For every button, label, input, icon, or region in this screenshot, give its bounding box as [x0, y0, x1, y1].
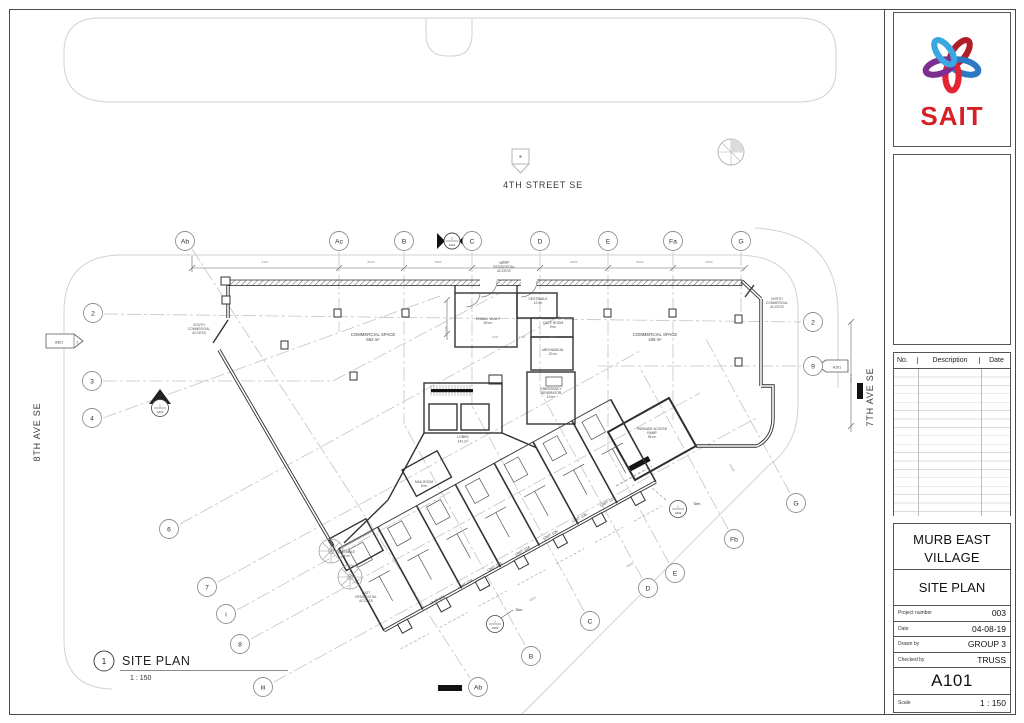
- grid-bubble-G: G: [787, 494, 806, 513]
- room-label-cacf-room: CACF ROOM9 m²: [543, 321, 563, 329]
- view-scale: 1 : 150: [130, 675, 152, 682]
- svg-text:3: 3: [90, 378, 94, 385]
- callout-marker-right: 1 A402: [670, 501, 687, 518]
- dim-label: 8000: [637, 260, 644, 264]
- street-label-top: 4TH STREET SE: [503, 180, 583, 190]
- site-plan-canvas: 1 A402 A301 2 1 A401 1 A402 1 A402: [0, 0, 884, 723]
- dim-label: 3437: [262, 260, 269, 264]
- section-sheet: A402: [449, 243, 456, 247]
- section-num: 1: [451, 237, 453, 241]
- field-date: Date 04-08-19: [894, 622, 1010, 638]
- callout2-sheet: A402: [675, 511, 682, 515]
- field-scale: Scale 1 : 150: [894, 695, 1010, 711]
- svg-text:8: 8: [238, 641, 242, 648]
- unit-interior-wall: [524, 485, 558, 521]
- unit-interior-wall: [369, 571, 403, 607]
- grid-bubble-E: E: [599, 232, 618, 251]
- flag-left-detail: 2: [77, 341, 79, 345]
- svg-text:Ab: Ab: [474, 684, 483, 691]
- grid-bubble-9: 9: [804, 357, 823, 376]
- svg-text:G: G: [793, 500, 798, 507]
- unit-band: [339, 399, 668, 651]
- field-value: GROUP 3: [968, 639, 1006, 649]
- svg-text:2: 2: [91, 310, 95, 317]
- grid-bubble-Fa: Fa: [664, 232, 683, 251]
- unit-patio-dash: [401, 634, 429, 649]
- drawing-title: SITE PLAN: [894, 570, 1010, 606]
- rev-col-no: No.: [894, 357, 918, 364]
- sait-logo-icon: [916, 27, 988, 99]
- svg-text:E: E: [673, 570, 678, 577]
- unit-patio-dash: [634, 506, 662, 521]
- grid-bubble-2: 2: [804, 313, 823, 332]
- view-title: 1 SITE PLAN 1 : 150: [94, 651, 288, 682]
- grid-bubble-C: C: [581, 612, 600, 631]
- field-label: Drawn by: [898, 641, 919, 647]
- grid-bubble-D: D: [531, 232, 550, 251]
- view-number: 1: [102, 657, 107, 666]
- svg-text:6: 6: [167, 526, 171, 533]
- field-label: Project number: [898, 610, 932, 616]
- room-label-mechanical: MECHANICAL20 m²: [542, 348, 564, 356]
- field-label: Checked by: [898, 657, 924, 663]
- unit-bathroom: [465, 478, 489, 503]
- unit-patio-dash: [556, 548, 584, 563]
- field-checked-by: Checked by TRUSS: [894, 653, 1010, 669]
- room-label-lobby: LOBBY141 m²: [457, 435, 470, 443]
- field-label: Date: [898, 626, 909, 632]
- svg-text:7: 7: [205, 584, 209, 591]
- unit-patio-dash: [440, 612, 468, 627]
- room-label-mail-room: MAIL ROOM8 m²: [415, 480, 433, 488]
- dim-label: 12192: [728, 463, 736, 473]
- grid-bubble-D: D: [639, 579, 658, 598]
- elevation-marker-icon: [512, 149, 529, 173]
- access-label-east: EASTRESIDENTIALACCESS: [355, 591, 377, 603]
- street-label-left: 8TH AVE SE: [32, 403, 42, 462]
- street-label-right: 7TH AVE SE: [865, 368, 875, 427]
- flag-right-sheet: A101: [833, 366, 841, 370]
- room-label-vestibule-west: VESTIBULE12 m²: [528, 297, 548, 305]
- svg-text:B: B: [529, 653, 534, 660]
- rev-col-description: Description: [918, 357, 980, 364]
- rev-col-date: Date: [980, 357, 1010, 364]
- diamond-sheet: A401: [157, 410, 164, 414]
- dim-label: 11130: [444, 326, 448, 334]
- dim-label: 1700: [519, 335, 525, 339]
- grid-bubble-8: 8: [231, 635, 250, 654]
- svg-text:iii: iii: [261, 684, 266, 691]
- flag-left-sheet: A301: [55, 341, 63, 345]
- right-tick-bar: [857, 383, 863, 399]
- dim-label: 8000: [571, 260, 578, 264]
- revision-header: No. Description Date: [894, 353, 1010, 369]
- unit-interior-wall: [408, 549, 442, 585]
- rev-divider-2: [981, 369, 982, 516]
- svg-text:4: 4: [90, 415, 94, 422]
- field-project-number: Project number 003: [894, 606, 1010, 622]
- grid-bubble-Ab: Ab: [469, 678, 488, 697]
- dim-label: 4177: [550, 335, 556, 339]
- dim-label: 4500: [529, 596, 537, 603]
- room-label-commercial-east: COMMERCIAL SPACE436 m²: [633, 332, 678, 342]
- titleblock-divider: [884, 9, 885, 714]
- svg-text:9: 9: [811, 363, 815, 370]
- dim-label: 8000: [503, 260, 510, 264]
- unit-interior-wall: [485, 507, 519, 543]
- unit-bathroom: [543, 436, 567, 461]
- callout-marker-mid: 1 A402: [487, 610, 514, 633]
- dim-label: 3000: [435, 260, 442, 264]
- callout-sheet: A402: [492, 626, 499, 630]
- logo-text: SAIT: [920, 101, 983, 132]
- revision-table: No. Description Date: [893, 352, 1011, 516]
- svg-text:Ab: Ab: [181, 238, 190, 245]
- north-arrow-icon: [718, 139, 744, 165]
- unit-interior-wall: [563, 464, 597, 500]
- unit-patio-dash: [517, 570, 545, 585]
- svg-text:C: C: [588, 618, 593, 625]
- grid-bubble-7: 7: [198, 578, 217, 597]
- svg-text:2: 2: [811, 319, 815, 326]
- svg-text:D: D: [538, 238, 543, 245]
- logo-panel: SAIT: [893, 12, 1011, 147]
- field-value: 04-08-19: [972, 624, 1006, 634]
- room-label-enmax-vault: ENMAX VAULT39 m²: [476, 317, 501, 325]
- svg-text:E: E: [606, 238, 611, 245]
- field-label: Scale: [898, 700, 911, 706]
- grid-bubble-E: E: [666, 564, 685, 583]
- field-value: TRUSS: [977, 655, 1006, 665]
- grid-bubble-Ab: Ab: [176, 232, 195, 251]
- dim-label: 8000: [368, 260, 375, 264]
- view-title-text: SITE PLAN: [122, 654, 190, 668]
- unit-bathroom: [582, 414, 606, 439]
- sim-note: Sim: [694, 501, 702, 506]
- section-diamond-left: 1 A401: [149, 389, 171, 417]
- svg-text:C: C: [470, 238, 475, 245]
- grid-bubble-B: B: [395, 232, 414, 251]
- grid-bubble-G: G: [732, 232, 751, 251]
- grid-bubble-Ac: Ac: [330, 232, 349, 251]
- match-line-bar: [438, 685, 462, 691]
- room-label-parkade-ramp: PARKADE ACCESSRAMP95 m²: [637, 427, 668, 439]
- dim-label: 1200: [492, 335, 498, 339]
- drawing-sheet: 1 A402 A301 2 1 A401 1 A402 1 A402: [0, 0, 1024, 723]
- grid-bubble-iii: iii: [254, 678, 273, 697]
- notes-panel: [893, 154, 1011, 345]
- dim-label: 4500: [626, 562, 634, 569]
- sheet-number: A101: [894, 668, 1010, 695]
- grid-lines: [103, 249, 801, 682]
- field-value: 1 : 150: [980, 698, 1006, 708]
- sim-note: Sim: [516, 607, 524, 612]
- svg-text:B: B: [402, 238, 407, 245]
- room-label-emergency-generator: EMERGENCYGENERATOR13 m²: [540, 387, 562, 399]
- grid-bubble-6: 6: [160, 520, 179, 539]
- svg-text:G: G: [738, 238, 743, 245]
- svg-text:D: D: [646, 585, 651, 592]
- section-flag-left: A301 2: [46, 334, 83, 348]
- svg-text:Ac: Ac: [335, 238, 344, 245]
- revision-rows: [894, 369, 1010, 516]
- access-label-north: NORTHCOMMERCIALACCESS: [766, 297, 789, 309]
- grid-bubble-Fb: Fb: [725, 530, 744, 549]
- grid-bubble-B: B: [522, 647, 541, 666]
- grid-bubble-2: 2: [84, 304, 103, 323]
- grid-bubble-i: i: [217, 605, 236, 624]
- mail-room: [402, 451, 451, 497]
- svg-text:Fa: Fa: [669, 238, 677, 245]
- title-block: SAIT No. Description Date MURB EAST VILL…: [893, 0, 1011, 723]
- project-name: MURB EAST VILLAGE: [894, 524, 1010, 570]
- grid-bubble-C: C: [463, 232, 482, 251]
- svg-text:Fb: Fb: [730, 536, 738, 543]
- access-label-south: SOUTHCOMMERCIALACCESS: [188, 323, 211, 335]
- rev-divider-1: [918, 369, 919, 516]
- project-info-panel: MURB EAST VILLAGE SITE PLAN Project numb…: [893, 523, 1011, 713]
- dim-label: 5000: [706, 260, 713, 264]
- field-value: 003: [992, 608, 1006, 618]
- room-label-commercial-west: COMMERCIAL SPACE662 m²: [351, 332, 396, 342]
- unit-bathroom: [504, 457, 528, 482]
- unit-bathroom: [388, 521, 412, 546]
- field-drawn-by: Drawn by GROUP 3: [894, 637, 1010, 653]
- grid-bubble-4: 4: [83, 409, 102, 428]
- grid-bubble-3: 3: [83, 372, 102, 391]
- dim-label: 27147: [849, 373, 853, 382]
